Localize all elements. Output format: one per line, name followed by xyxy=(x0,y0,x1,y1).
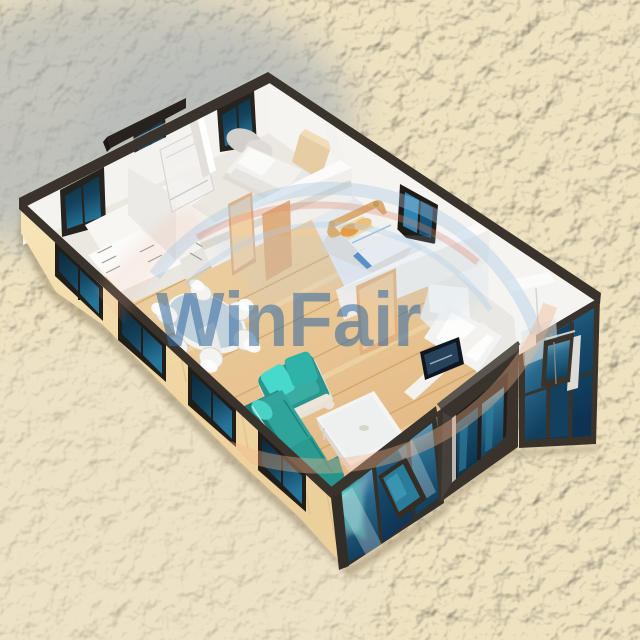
svg-text:WinFair: WinFair xyxy=(156,276,422,362)
